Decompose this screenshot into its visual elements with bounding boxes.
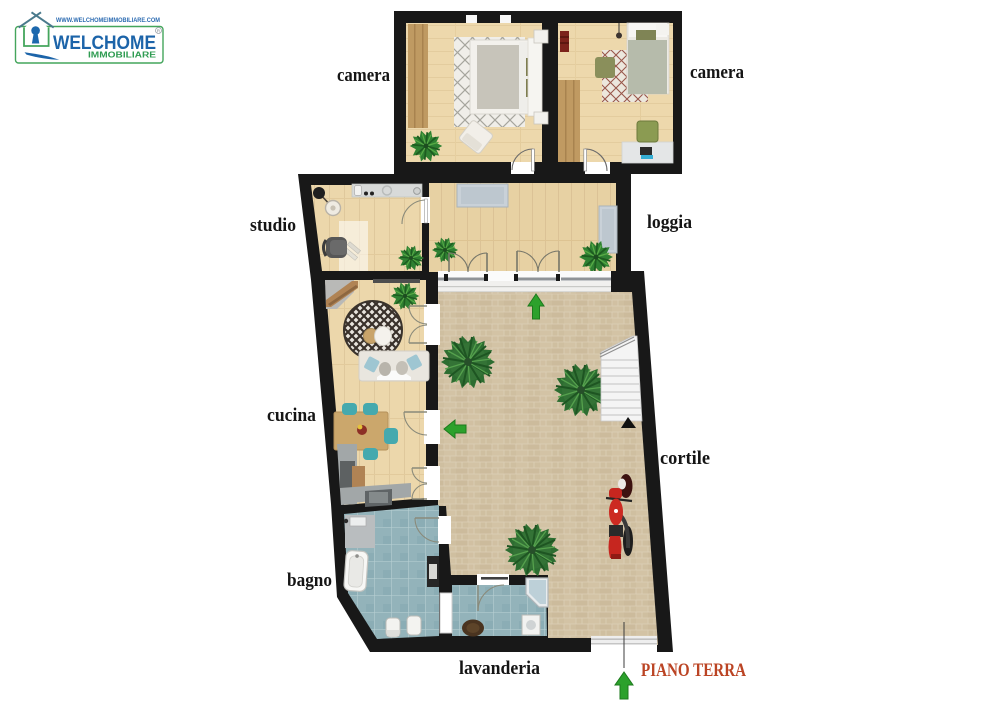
svg-text:WWW.WELCHOMEIMMOBILIARE.COM: WWW.WELCHOMEIMMOBILIARE.COM [56, 17, 160, 24]
svg-text:camera: camera [337, 65, 390, 86]
svg-text:cucina: cucina [267, 405, 316, 426]
svg-text:camera: camera [690, 62, 744, 83]
svg-text:cortile: cortile [660, 448, 710, 469]
svg-text:lavanderia: lavanderia [459, 658, 540, 679]
svg-text:studio: studio [250, 215, 296, 236]
svg-text:PIANO TERRA: PIANO TERRA [641, 660, 746, 681]
svg-text:bagno: bagno [287, 570, 332, 591]
svg-text:R: R [157, 29, 160, 34]
svg-text:IMMOBILIARE: IMMOBILIARE [88, 51, 157, 60]
svg-text:loggia: loggia [647, 212, 692, 233]
